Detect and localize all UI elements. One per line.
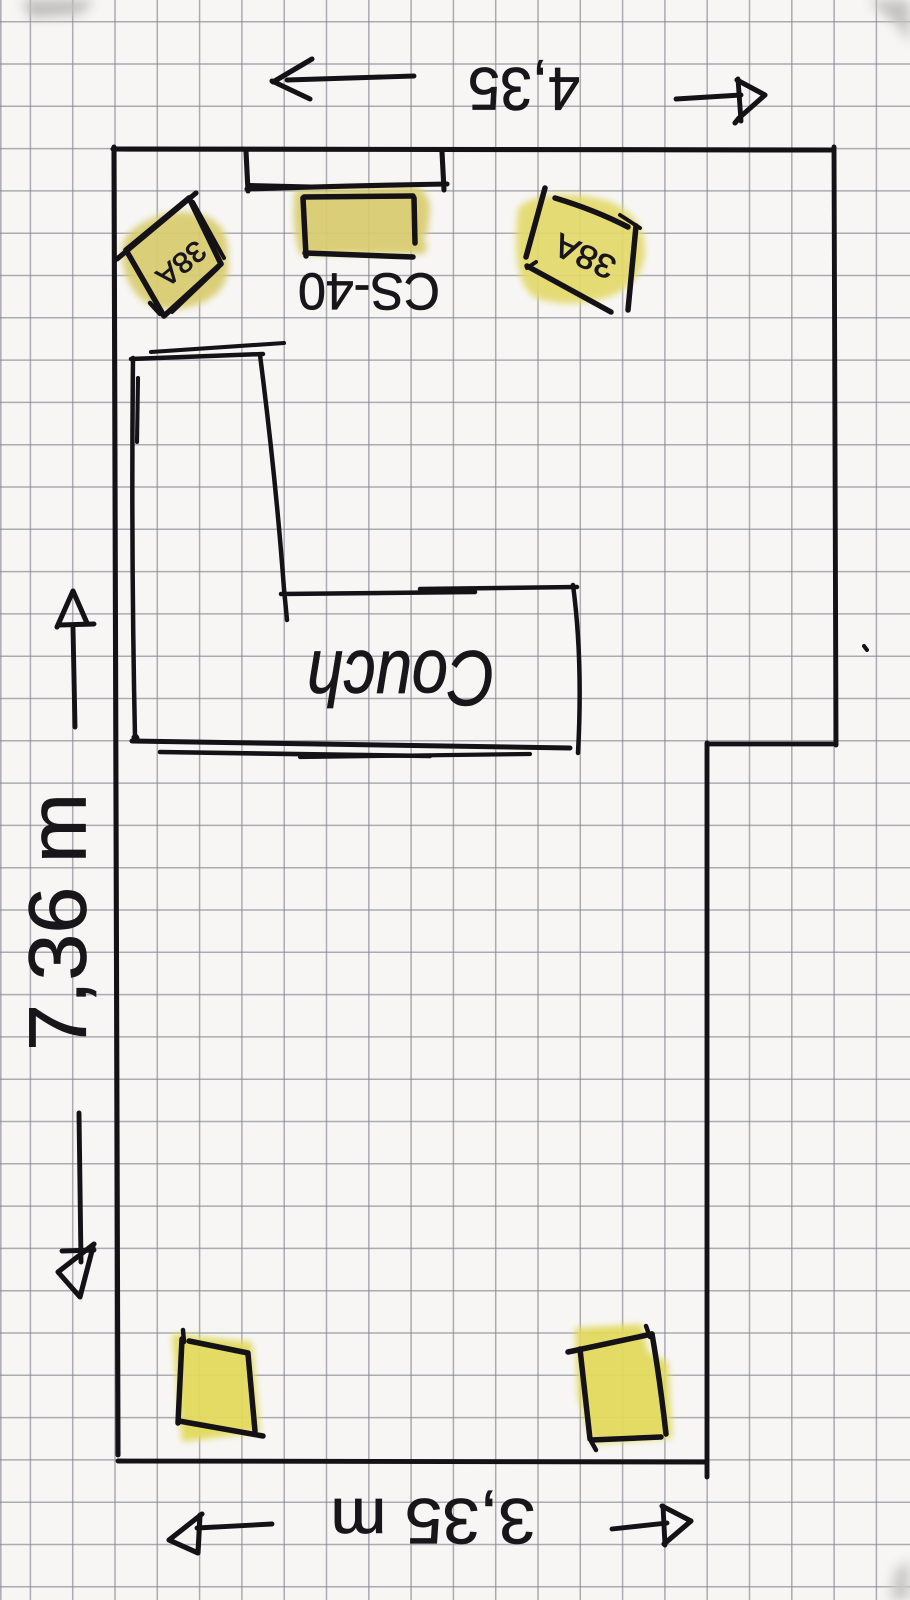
svg-text:Couch: Couch bbox=[307, 634, 495, 722]
svg-text:3,35 m: 3,35 m bbox=[331, 1485, 536, 1557]
svg-text:4,35: 4,35 bbox=[468, 55, 580, 122]
svg-text:7,36 m: 7,36 m bbox=[13, 793, 104, 1051]
svg-text:CS-40: CS-40 bbox=[298, 261, 440, 319]
